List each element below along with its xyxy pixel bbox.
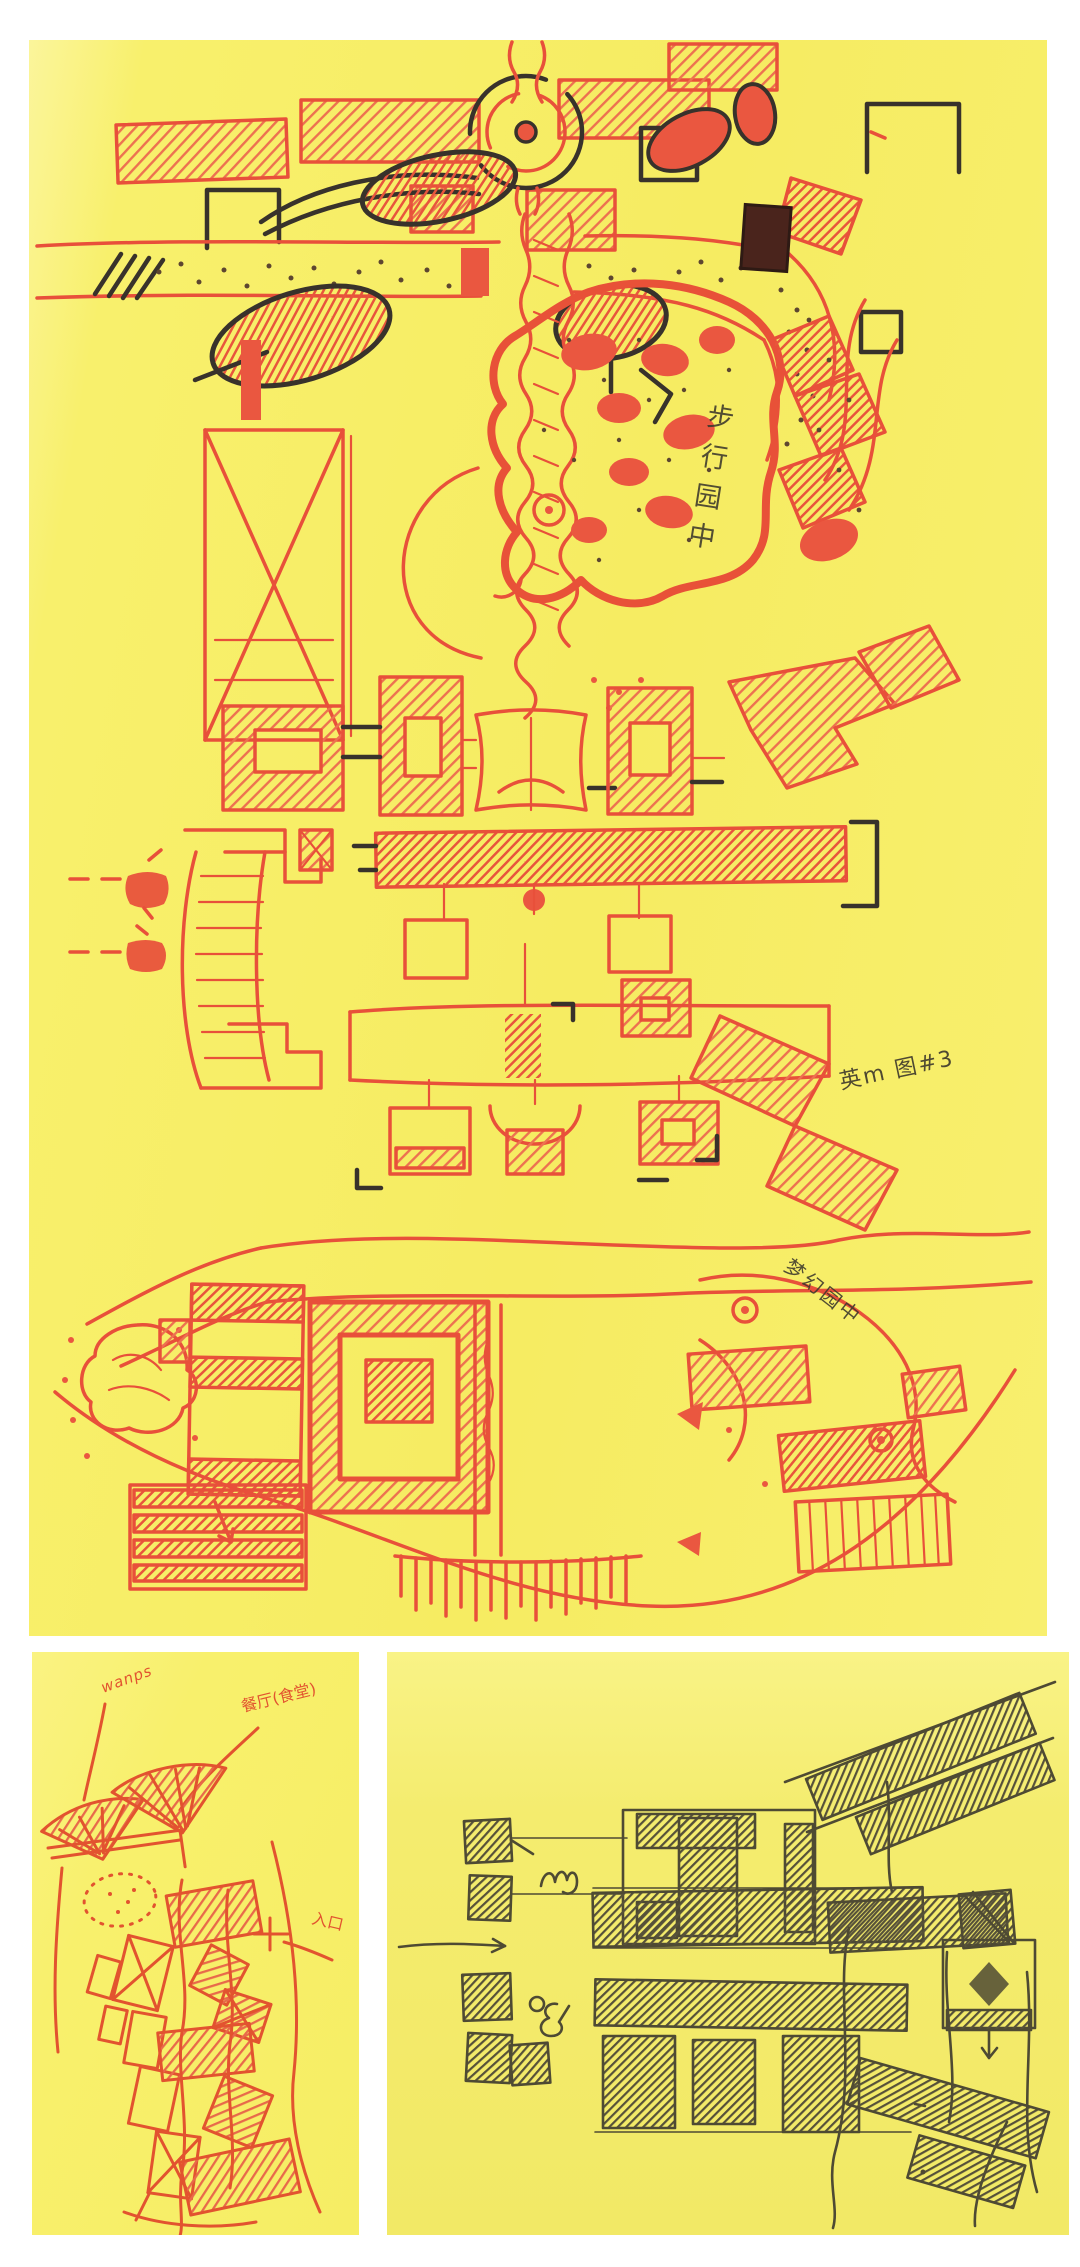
canopy-sketch-panel xyxy=(32,1652,359,2235)
courtyard-row-upper xyxy=(223,626,959,815)
site-plan-panel xyxy=(29,40,1047,1636)
pencil-plan-panel xyxy=(387,1652,1069,2235)
scribble-symbols xyxy=(530,1872,577,2036)
diamond-court xyxy=(943,1940,1035,2058)
lower-right-wing xyxy=(832,2058,1049,2210)
upper-right-wing xyxy=(785,1682,1055,1866)
entry-arrow xyxy=(399,1939,505,1952)
canopy-sketch xyxy=(32,1652,359,2235)
lower-left-buildings xyxy=(62,1284,488,1589)
central-compound xyxy=(593,1810,1016,1953)
cascade-rooms xyxy=(87,1881,300,2215)
lower-right-cluster xyxy=(677,1275,966,1572)
garden-amoeba xyxy=(491,283,897,603)
pencil-plan-sketch xyxy=(387,1652,1069,2235)
garden-stipple xyxy=(542,338,731,562)
axis-fringe xyxy=(395,1305,641,1620)
site-plan-sketch xyxy=(29,40,1047,1636)
crosswalk-hatch xyxy=(95,254,163,298)
scanned-sketch-page: 步行园中 英m 图#3 梦幻园中 wanps 餐厅(食堂) 入口 xyxy=(0,0,1080,2267)
